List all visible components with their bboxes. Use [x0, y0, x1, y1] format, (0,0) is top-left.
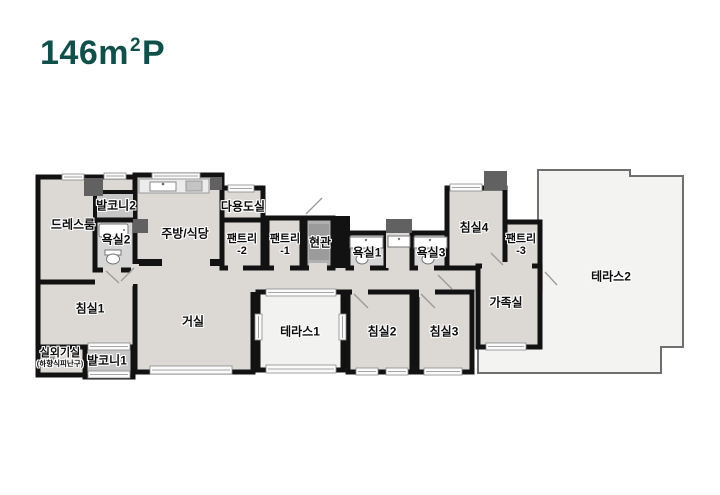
- room-label-bedroom4: 침실4: [460, 222, 489, 235]
- room-label-bedroom3: 침실3: [430, 326, 459, 339]
- room-label-pantry2: 팬트리-2: [227, 233, 257, 257]
- room-label-dressroom: 드레스룸: [51, 219, 95, 232]
- room-label-bedroom1: 침실1: [76, 303, 105, 316]
- room-label-outdoor-unit: 실외기실(하향식피난구): [37, 348, 83, 368]
- room-label-bath1: 욕실1: [353, 247, 382, 260]
- room-label-pantry1: 팬트리-1: [270, 233, 300, 257]
- toilet-icon: [107, 254, 120, 264]
- room-label-terrace1: 테라스1: [280, 326, 320, 339]
- floorplan: 드레스룸 발코니2 욕실2 주방/식당 다용도실 팬트리-2 팬트리-1 현관 …: [0, 0, 720, 495]
- kitchen-counter: [139, 179, 209, 193]
- room-label-balcony2: 발코니2: [96, 200, 136, 213]
- room-label-bedroom2: 침실2: [368, 326, 397, 339]
- washstand-counter: [388, 236, 410, 247]
- room-label-balcony1: 발코니1: [87, 355, 127, 368]
- room-label-family: 가족실: [489, 297, 522, 310]
- room-label-kitchen: 주방/식당: [161, 228, 209, 241]
- room-label-bath3: 욕실3: [417, 247, 446, 260]
- stove-icon: [186, 181, 202, 191]
- room-label-bath2: 욕실2: [102, 234, 131, 247]
- floorplan-page: 146m2P: [0, 0, 720, 495]
- room-label-entrance: 현관: [309, 237, 331, 250]
- room-label-utility: 다용도실: [221, 201, 265, 214]
- room-label-terrace2: 테라스2: [591, 271, 631, 284]
- room-label-living: 거실: [182, 316, 204, 329]
- room-label-pantry3: 팬트리-3: [506, 233, 536, 257]
